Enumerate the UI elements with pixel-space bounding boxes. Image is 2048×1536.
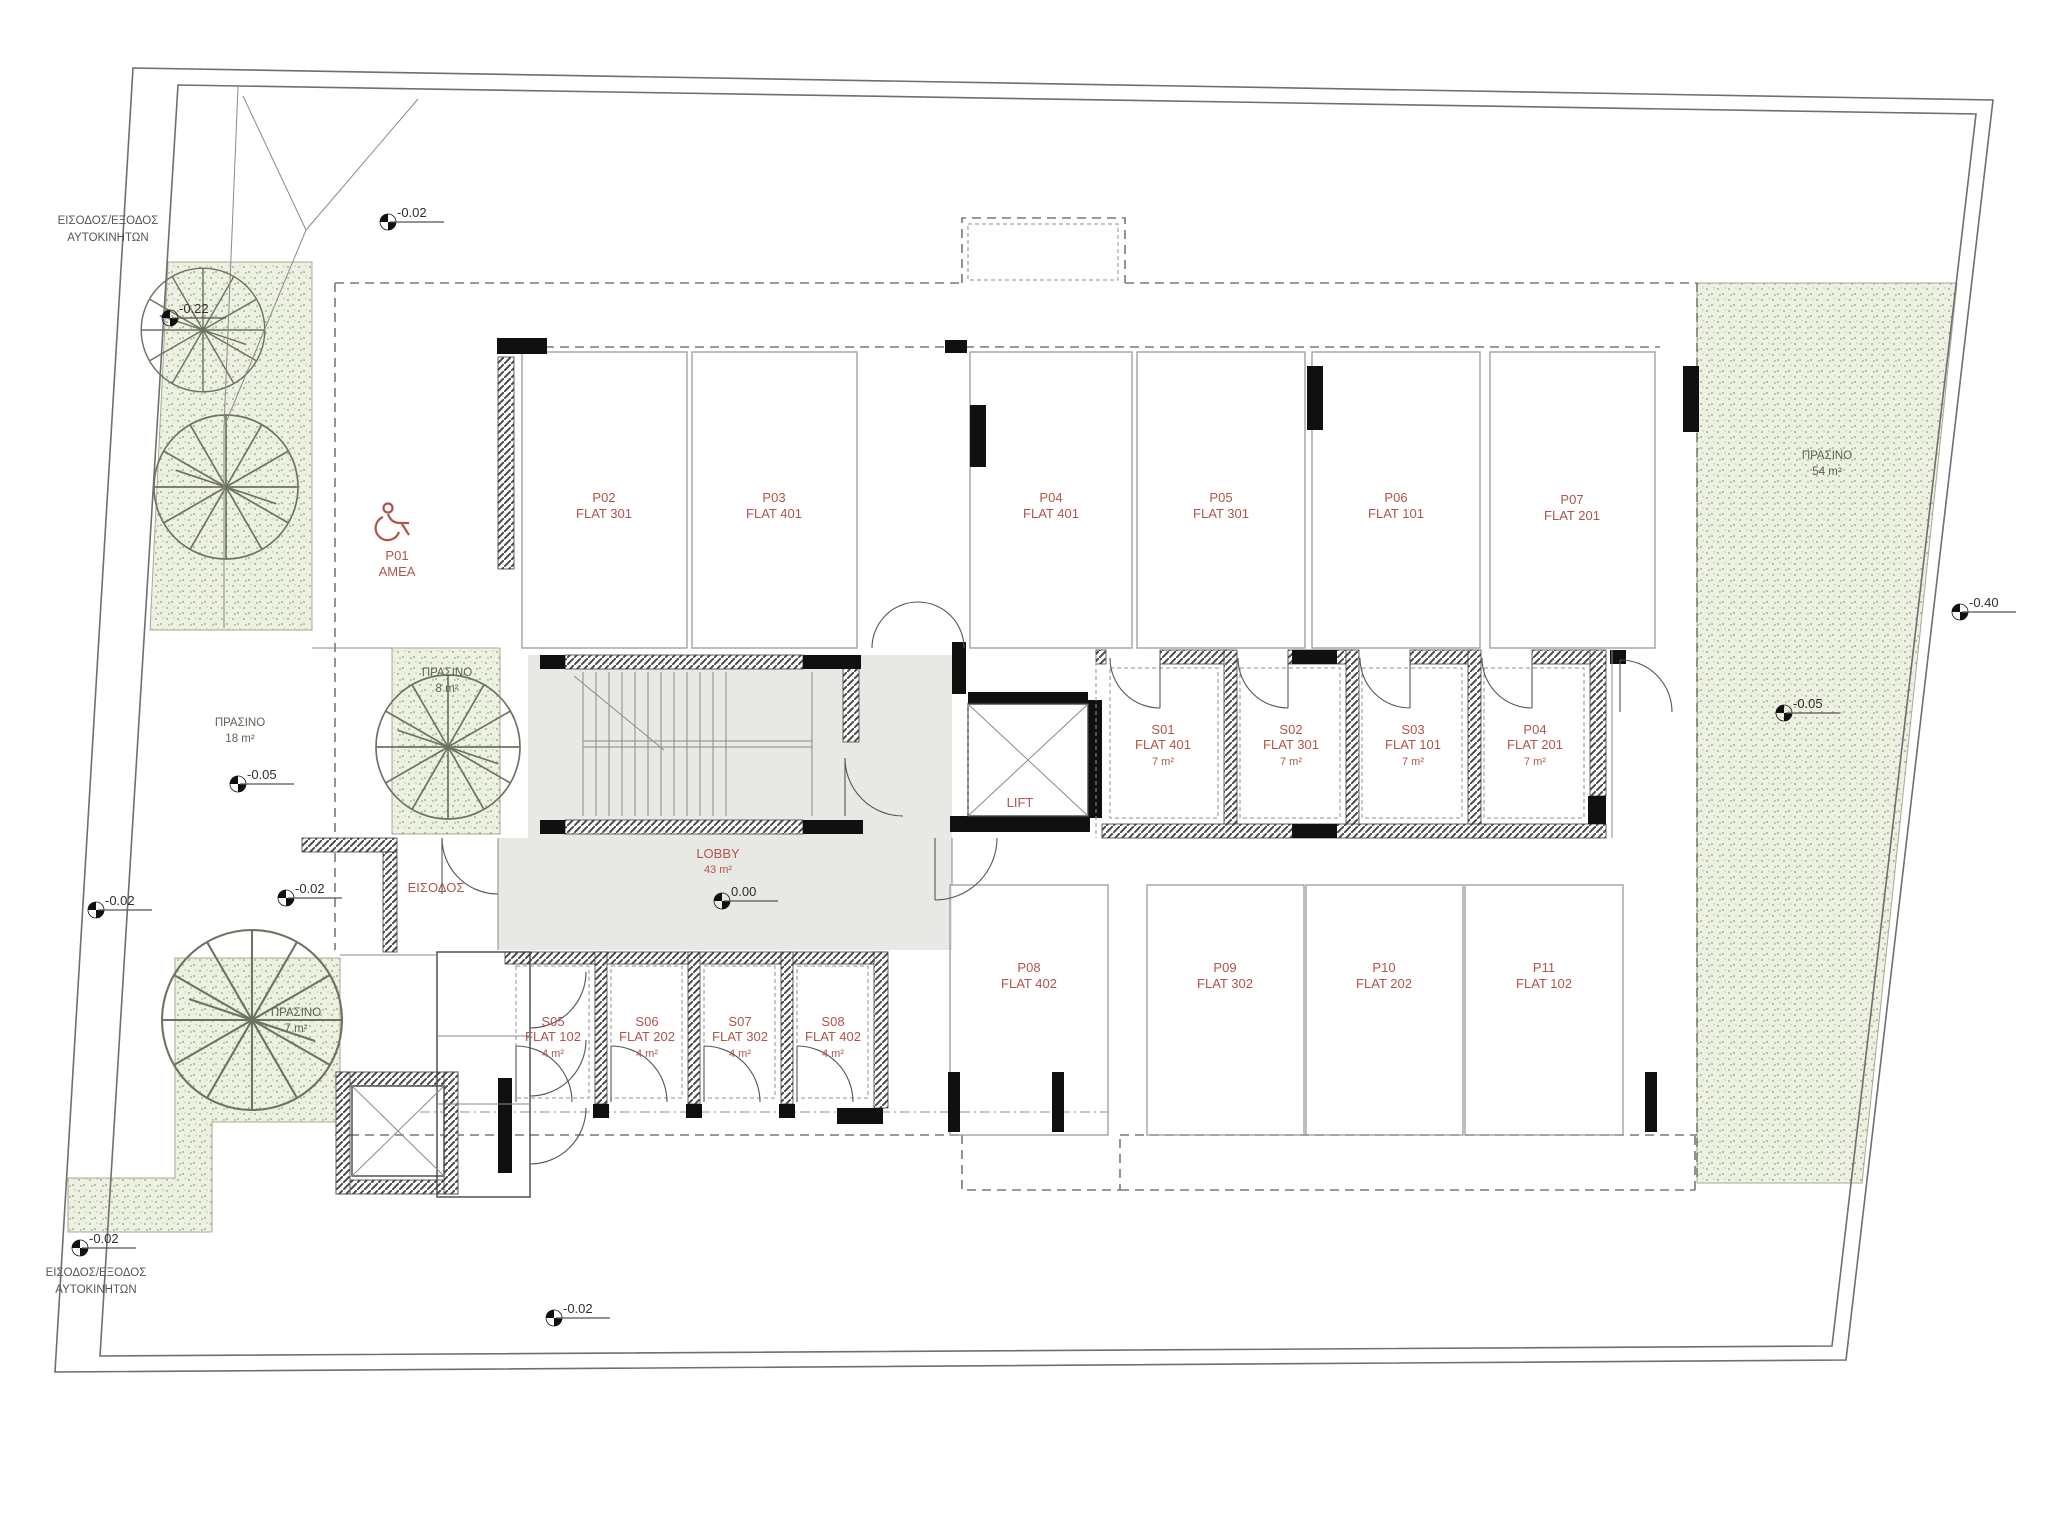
storage-s08-id: S08: [821, 1014, 844, 1029]
level-value: 0.00: [731, 884, 756, 899]
car-entry-bottom-line2: ΑΥΤΟΚΙΝΗΤΩΝ: [55, 1284, 136, 1296]
storage-s07-id: S07: [728, 1014, 751, 1029]
parking-p11-flat: FLAT 102: [1516, 976, 1572, 991]
green-mid-label: ΠΡΑΣΙΝΟ: [422, 667, 472, 679]
parking-p08-id: P08: [1017, 960, 1040, 975]
storage-s03-flat: FLAT 101: [1385, 737, 1441, 752]
parking-p04-id: P04: [1039, 490, 1062, 505]
level-value: -0.02: [563, 1301, 593, 1316]
green-right-label: ΠΡΑΣΙΝΟ: [1802, 450, 1852, 462]
level-marker-bottom-left: -0.02: [72, 1231, 136, 1256]
green-left-area: 18 m²: [225, 733, 255, 745]
storage-s01-id: S01: [1151, 722, 1174, 737]
car-entry-top-line2: ΑΥΤΟΚΙΝΗΤΩΝ: [67, 232, 148, 244]
level-marker-left: -0.02: [88, 893, 152, 918]
storage-s08-area: 4 m²: [822, 1048, 844, 1060]
level-marker-right-out: -0.40: [1952, 595, 2016, 620]
storage-s02-flat: FLAT 301: [1263, 737, 1319, 752]
storage-s04-area: 7 m²: [1524, 756, 1546, 768]
parking-p01-id: P01: [385, 548, 408, 563]
green-right-area: 54 m²: [1812, 466, 1842, 478]
parking-p06-flat: FLAT 101: [1368, 506, 1424, 521]
level-value: -0.05: [1793, 696, 1823, 711]
level-marker-green-left: -0.05: [230, 767, 294, 792]
parking-p07-flat: FLAT 201: [1544, 508, 1600, 523]
storage-s04-flat: FLAT 201: [1507, 737, 1563, 752]
floor-plan-page: ΕΙΣΟΔΟΣ/ΕΞΟΔΟΣ ΑΥΤΟΚΙΝΗΤΩΝ ΕΙΣΟΔΟΣ/ΕΞΟΔΟ…: [0, 0, 2048, 1536]
level-marker-bottom: -0.02: [546, 1301, 610, 1326]
car-entry-top-line1: ΕΙΣΟΔΟΣ/ΕΞΟΔΟΣ: [58, 215, 159, 227]
green-left-label: ΠΡΑΣΙΝΟ: [215, 717, 265, 729]
storage-s05-id: S05: [541, 1014, 564, 1029]
storage-s05-area: 4 m²: [542, 1048, 564, 1060]
green-mid-area: 8 m²: [436, 683, 459, 695]
storage-s07-area: 4 m²: [729, 1048, 751, 1060]
level-value: -0.02: [295, 881, 325, 896]
parking-p09-id: P09: [1213, 960, 1236, 975]
storage-s02-area: 7 m²: [1280, 756, 1302, 768]
storage-s01-flat: FLAT 401: [1135, 737, 1191, 752]
level-value: -0.02: [89, 1231, 119, 1246]
storage-s08-flat: FLAT 402: [805, 1029, 861, 1044]
level-marker-top: -0.02: [380, 205, 444, 230]
lobby-label: LOBBY: [696, 846, 740, 861]
storage-s06-flat: FLAT 202: [619, 1029, 675, 1044]
storage-s07-flat: FLAT 302: [712, 1029, 768, 1044]
storage-s04-id: P04: [1523, 722, 1546, 737]
level-value: -0.02: [105, 893, 135, 908]
parking-p05-id: P05: [1209, 490, 1232, 505]
storage-s03-id: S03: [1401, 722, 1424, 737]
floor-plan-canvas: ΕΙΣΟΔΟΣ/ΕΞΟΔΟΣ ΑΥΤΟΚΙΝΗΤΩΝ ΕΙΣΟΔΟΣ/ΕΞΟΔΟ…: [0, 0, 2048, 1536]
level-value: -0.22: [179, 301, 209, 316]
green-bottom-label: ΠΡΑΣΙΝΟ: [271, 1007, 321, 1019]
green-bottom-area: 7 m²: [285, 1023, 308, 1035]
level-value: -0.40: [1969, 595, 1999, 610]
lift-label: LIFT: [1007, 795, 1034, 810]
wheelchair-icon: [376, 504, 409, 541]
parking-p06-id: P06: [1384, 490, 1407, 505]
entrance-label: ΕΙΣΟΔΟΣ: [408, 880, 465, 895]
parking-p07-id: P07: [1560, 492, 1583, 507]
storage-s03-area: 7 m²: [1402, 756, 1424, 768]
level-value: -0.05: [247, 767, 277, 782]
level-value: -0.02: [397, 205, 427, 220]
parking-p05-flat: FLAT 301: [1193, 506, 1249, 521]
storage-s06-area: 4 m²: [636, 1048, 658, 1060]
parking-p03-id: P03: [762, 490, 785, 505]
parking-p10-flat: FLAT 202: [1356, 976, 1412, 991]
parking-p09-flat: FLAT 302: [1197, 976, 1253, 991]
storage-s02-id: S02: [1279, 722, 1302, 737]
parking-p08-flat: FLAT 402: [1001, 976, 1057, 991]
storage-s01-area: 7 m²: [1152, 756, 1174, 768]
parking-p11-id: P11: [1533, 960, 1555, 975]
level-marker-court: -0.02: [278, 881, 342, 906]
parking-p01-flat: AMEA: [379, 564, 416, 579]
car-entry-bottom-line1: ΕΙΣΟΔΟΣ/ΕΞΟΔΟΣ: [46, 1267, 147, 1279]
lobby-area: 43 m²: [704, 864, 732, 876]
parking-p03-flat: FLAT 401: [746, 506, 802, 521]
parking-p02-id: P02: [592, 490, 615, 505]
parking-p04-flat: FLAT 401: [1023, 506, 1079, 521]
storage-s06-id: S06: [635, 1014, 658, 1029]
parking-p02-flat: FLAT 301: [576, 506, 632, 521]
storage-s05-flat: FLAT 102: [525, 1029, 581, 1044]
parking-p10-id: P10: [1372, 960, 1395, 975]
